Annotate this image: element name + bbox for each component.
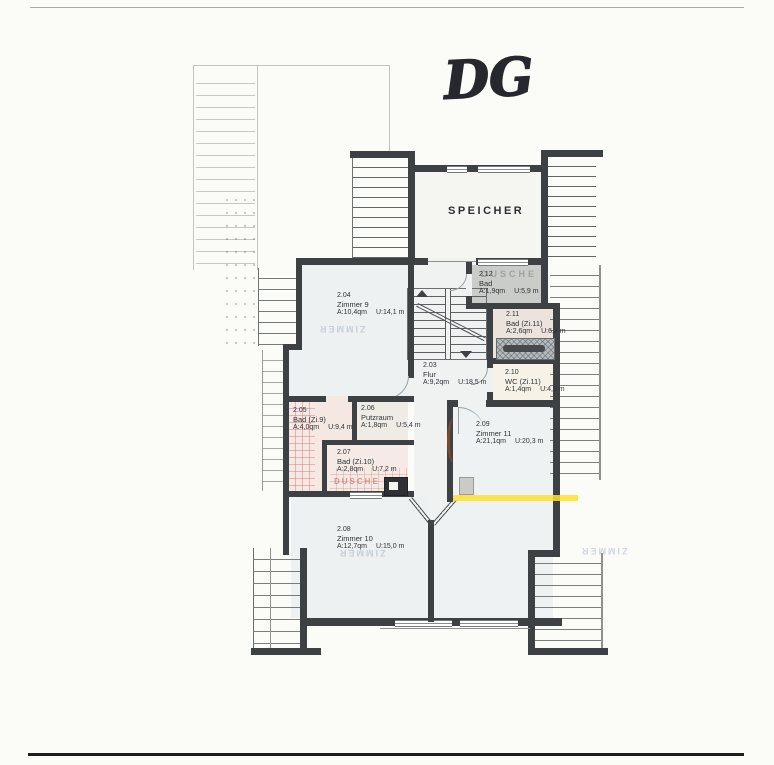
floor-title: DG: [436, 38, 566, 114]
room-name: Bad (Zi.10): [337, 458, 406, 467]
speicher-label: SPEICHER: [448, 205, 524, 217]
right-band-rail: [599, 265, 601, 480]
room-fill-zimmer9-lower: [289, 350, 309, 396]
wall-beam-top-left: [350, 151, 412, 158]
balcony-right-rail: [601, 553, 603, 651]
room-label-2-10: 2.10 WC (Zi.11) A:1,4qmU:4,9 m: [505, 369, 574, 395]
room-label-2-11: 2.11 Bad (Zi.11) A:2,6qmU:6,4 m: [506, 311, 575, 337]
window-speicher-top-1: [447, 166, 467, 173]
wall-zimmer10-left-lower: [300, 548, 307, 655]
wall-balcony-right-beam: [528, 648, 608, 655]
bleedthrough-zimmer9: ZIMMER: [318, 324, 366, 334]
balcony-left-center-rail: [270, 548, 271, 648]
wall-left-outer: [283, 344, 289, 555]
door-gap-bad212: [466, 274, 472, 296]
room-name: Bad: [479, 280, 548, 289]
yellow-highlight-mark: [453, 495, 578, 501]
room-name: Bad (Zi.11): [506, 320, 575, 329]
room-metrics: A:2,6qmU:6,4 m: [506, 328, 575, 337]
room-label-2-07: 2.07 Bad (Zi.10) A:2,8qmU:7,2 m: [337, 449, 406, 475]
balcony-hatch-bottom-left: [253, 548, 301, 648]
wall-bad205-right-lower: [322, 440, 327, 497]
door-gap-zimmer9: [408, 378, 414, 398]
room-metrics: A:1,4qmU:4,9 m: [505, 386, 574, 395]
floor-title-text: DG: [441, 46, 536, 112]
bleedthrough-zimmer11: ZIMMER: [580, 546, 628, 556]
shower-unit-bad211: [496, 338, 555, 360]
room-fill-zimmer11-left: [434, 520, 454, 618]
room-label-2-12: 2.12 Bad A:1,9qmU:5,9 m: [479, 271, 548, 297]
window-zimmer10-south: [395, 620, 452, 627]
room-metrics: A:1,8qmU:5,4 m: [361, 422, 430, 431]
wall-beam-top-right: [541, 150, 603, 157]
balcony-hatch-bottom-right: [535, 553, 601, 648]
room-name: Putzraum: [361, 414, 430, 423]
page-bottom-rule: [28, 753, 744, 756]
wall-speicher-right: [541, 150, 548, 265]
staircase: [407, 288, 487, 360]
room-name: WC (Zi.11): [505, 378, 574, 387]
room-metrics: A:2,8qmU:7,2 m: [337, 466, 406, 475]
room-metrics: A:4,0qmU:9,4 m: [293, 424, 362, 433]
fixture-box-zimmer11: [459, 477, 474, 495]
window-zimmer11-south: [460, 620, 518, 627]
roof-hatch-right-of-speicher: [548, 157, 596, 258]
window-sill-line: [380, 628, 530, 629]
page-top-rule: [30, 7, 744, 8]
wall-balcony-right-left: [528, 550, 535, 655]
door-gap-zimmer11: [458, 400, 486, 407]
room-metrics: A:12,7qmU:15,0 m: [337, 543, 413, 552]
room-name: Zimmer 11: [476, 430, 552, 439]
room-metrics: A:9,2qmU:18,5 m: [423, 379, 495, 388]
wall-zimmer10-11-divider: [428, 520, 434, 622]
room-label-2-03: 2.03 Flur A:9,2qmU:18,5 m: [423, 362, 495, 388]
door-gap-bad205: [326, 396, 348, 402]
roof-hatch-left-upper: [258, 268, 299, 346]
room-metrics: A:10,4qmU:14,1 m: [337, 309, 413, 318]
room-name: Zimmer 10: [337, 535, 413, 544]
room-label-2-05: 2.05 Bad (Zi.9) A:4,0qmU:9,4 m: [293, 407, 362, 433]
room-name: Bad (Zi.9): [293, 416, 362, 425]
staircase-up-arrow-icon: [416, 290, 428, 297]
room-metrics: A:21,1qmU:20,3 m: [476, 438, 552, 447]
shower-unit-label-bar: [503, 345, 545, 352]
sketch-line-top: [193, 65, 390, 66]
room-label-2-04: 2.04 Zimmer 9 A:10,4qmU:14,1 m: [337, 292, 413, 318]
window-speicher-top-2: [478, 166, 530, 173]
wall-balcony-left-beam: [251, 648, 321, 655]
chimney-flue: [389, 482, 398, 490]
staircase-down-arrow-icon: [460, 351, 472, 358]
wall-zimmer9-left-upper: [296, 258, 302, 350]
wall-speicher-left: [408, 151, 415, 265]
room-metrics: A:1,9qmU:5,9 m: [479, 288, 548, 297]
chimney-block: [384, 477, 408, 496]
radiator-mark-zimmer11: [447, 418, 460, 463]
watermark-dusche-bad207: DUSCHE: [334, 477, 380, 486]
door-light-bad207-south: [350, 492, 382, 499]
room-name: Zimmer 9: [337, 301, 413, 310]
room-label-2-09: 2.09 Zimmer 11 A:21,1qmU:20,3 m: [476, 421, 552, 447]
roof-hatch-left-of-speicher: [352, 158, 409, 258]
sketch-line-vertical-3: [389, 65, 390, 157]
wall-bathblock-top: [283, 396, 414, 402]
room-label-2-08: 2.08 Zimmer 10 A:12,7qmU:15,0 m: [337, 526, 413, 552]
room-label-2-06: 2.06 Putzraum A:1,8qmU:5,4 m: [361, 405, 430, 431]
sketch-line-vertical-1: [193, 65, 194, 270]
window-speicher-bottom: [478, 259, 528, 266]
room-name: Flur: [423, 371, 495, 380]
wall-putzraum-bottom: [322, 440, 414, 445]
pencil-scribble-marks: [225, 198, 258, 346]
scanned-floor-plan-page: DG DUSCHE DUSCHE ZIMMER ZIMMER ZIMMER: [0, 0, 774, 765]
